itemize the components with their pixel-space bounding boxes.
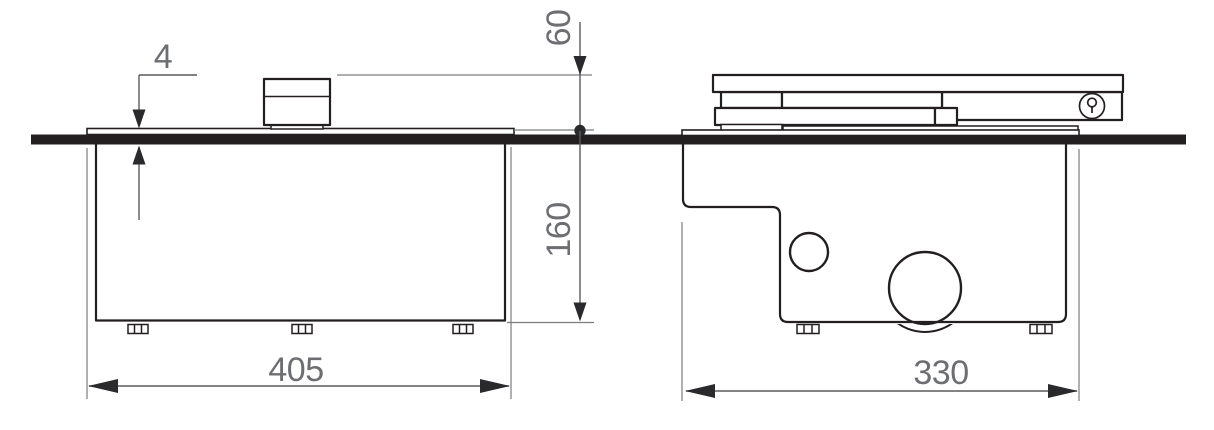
- socket-housing: [264, 79, 330, 125]
- lid-top-plate: [713, 75, 1123, 92]
- lid-lower-plate: [715, 108, 935, 125]
- arrow-down-icon: [133, 110, 146, 129]
- dim-lid-height: 60: [337, 10, 592, 130]
- dim-label-330: 330: [913, 354, 968, 392]
- arrow-right-icon: [1048, 384, 1078, 398]
- arrow-right-icon: [480, 379, 510, 393]
- technical-drawing: 4 60 160 405 330: [0, 0, 1214, 430]
- drawing-canvas: 4 60 160 405 330: [0, 0, 1214, 430]
- lid-hinge-block: [721, 92, 782, 108]
- arrow-left-icon: [88, 379, 118, 393]
- foot: [128, 325, 148, 334]
- dim-label-60: 60: [540, 10, 578, 47]
- foot: [453, 325, 473, 334]
- foot: [797, 325, 819, 334]
- front-view: [96, 144, 505, 334]
- dim-label-405: 405: [268, 351, 323, 389]
- foot: [1030, 325, 1052, 334]
- front-view-feet: [128, 325, 473, 334]
- dim-label-160: 160: [540, 202, 578, 257]
- dim-label-4: 4: [154, 38, 172, 76]
- front-view-top: [87, 79, 514, 135]
- side-view: [683, 144, 1066, 334]
- dim-box-depth: 160: [507, 125, 594, 323]
- front-view-box: [96, 144, 505, 321]
- foot: [292, 325, 312, 334]
- lid-latch-block: [935, 108, 957, 125]
- arrow-down-icon: [574, 56, 587, 75]
- arrow-left-icon: [685, 384, 715, 398]
- side-view-cover-plate: [682, 130, 1079, 136]
- side-view-box: [683, 144, 1066, 322]
- side-view-lid: [682, 75, 1123, 136]
- arrow-down-icon: [574, 303, 587, 322]
- lid-mid-block: [782, 92, 942, 108]
